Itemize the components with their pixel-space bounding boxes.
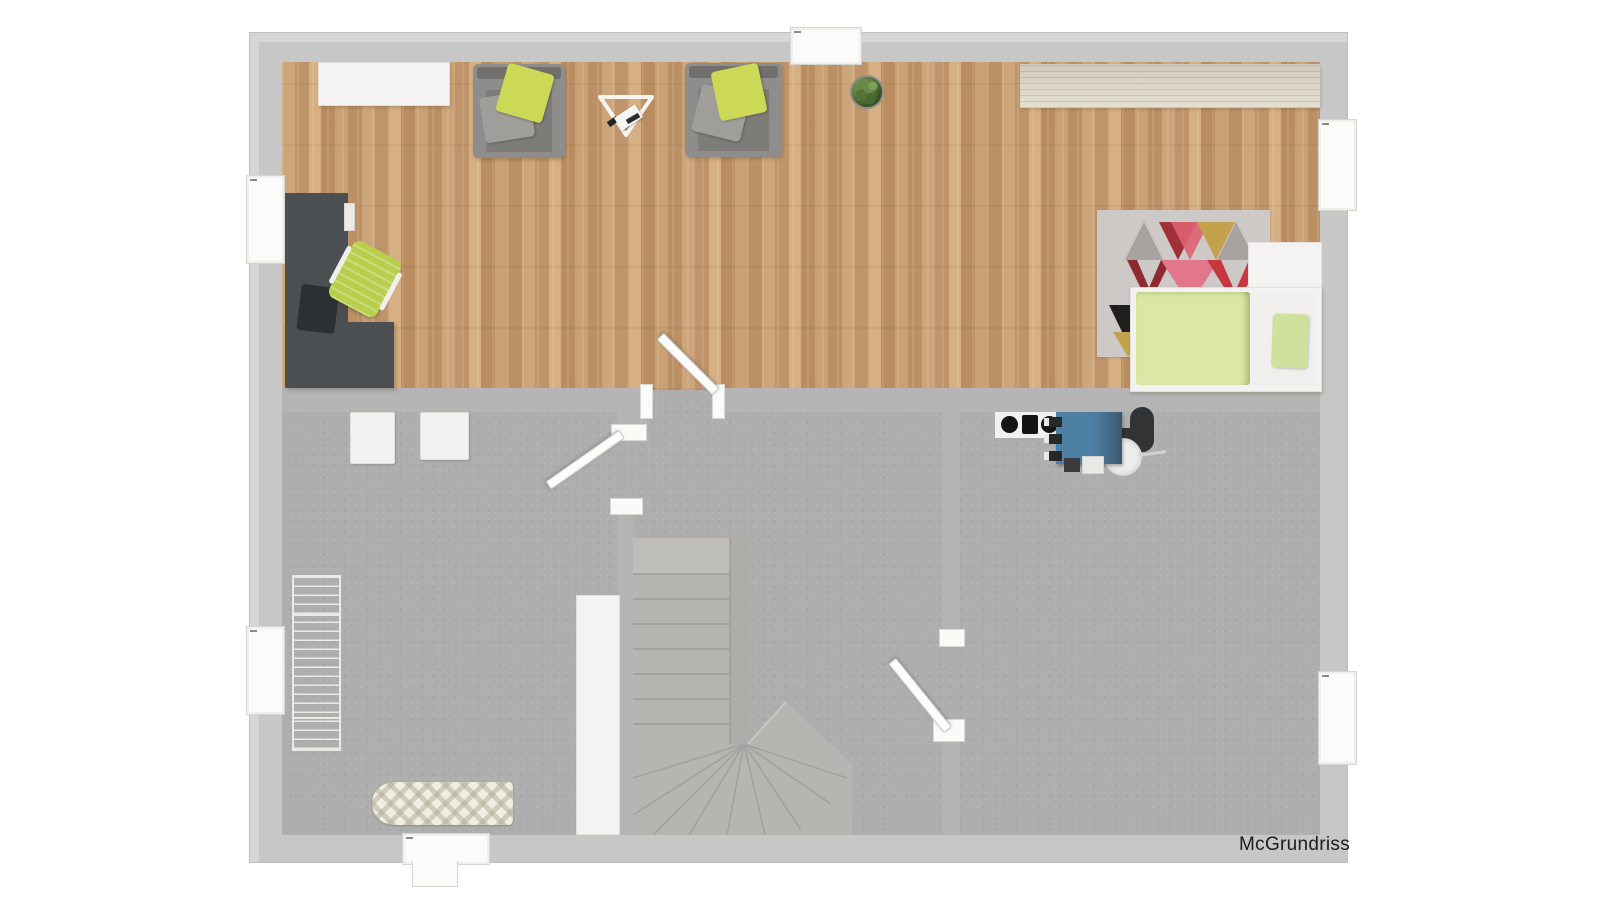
green-pillow [710,63,767,122]
watermark: McGrundriss [1190,834,1350,856]
bed-headboard [1248,242,1322,290]
wall-highlight-left [250,33,259,862]
bed-duvet [1136,292,1250,385]
interior-wall-mid-left [282,388,617,412]
window-bottom-sill [412,861,458,887]
interior-wall-room-lower [943,727,960,835]
kitchen-counter [1020,64,1320,108]
stove-knob [1049,434,1062,444]
door-frame-room-top [939,629,965,647]
white-cabinet-1 [350,412,395,464]
plant-leaves [852,77,882,107]
window-right-upper [1318,119,1357,211]
stove-base-white [1082,456,1104,474]
window-left-lower [246,626,285,715]
corner-desk-return [285,322,394,388]
bed-pillow [1271,313,1309,368]
door-frame-living-left [640,384,653,419]
ironing-board [372,782,513,825]
potted-plant [850,75,884,109]
door-frame-stairwall [610,498,643,515]
burner-icon [1001,416,1018,433]
white-cabinet-2 [420,412,469,460]
stove-knob [1049,417,1062,427]
window-top [790,27,862,65]
floor-plan-canvas: McGrundriss [0,0,1600,900]
burner-square-icon [1022,415,1038,434]
window-left-upper [246,175,285,264]
stove-knob [1049,451,1062,461]
armchair-right [685,63,782,157]
winder-staircase [633,538,853,835]
interior-wall-room-upper [943,412,960,633]
drying-rack [292,575,341,751]
desk-accessory [344,203,355,231]
sideboard [318,62,450,106]
stove-base-dark [1064,458,1080,472]
wardrobe [576,595,620,835]
window-right-lower [1318,671,1357,765]
armchair-left [473,64,565,158]
interior-wall-staircase [618,500,633,835]
